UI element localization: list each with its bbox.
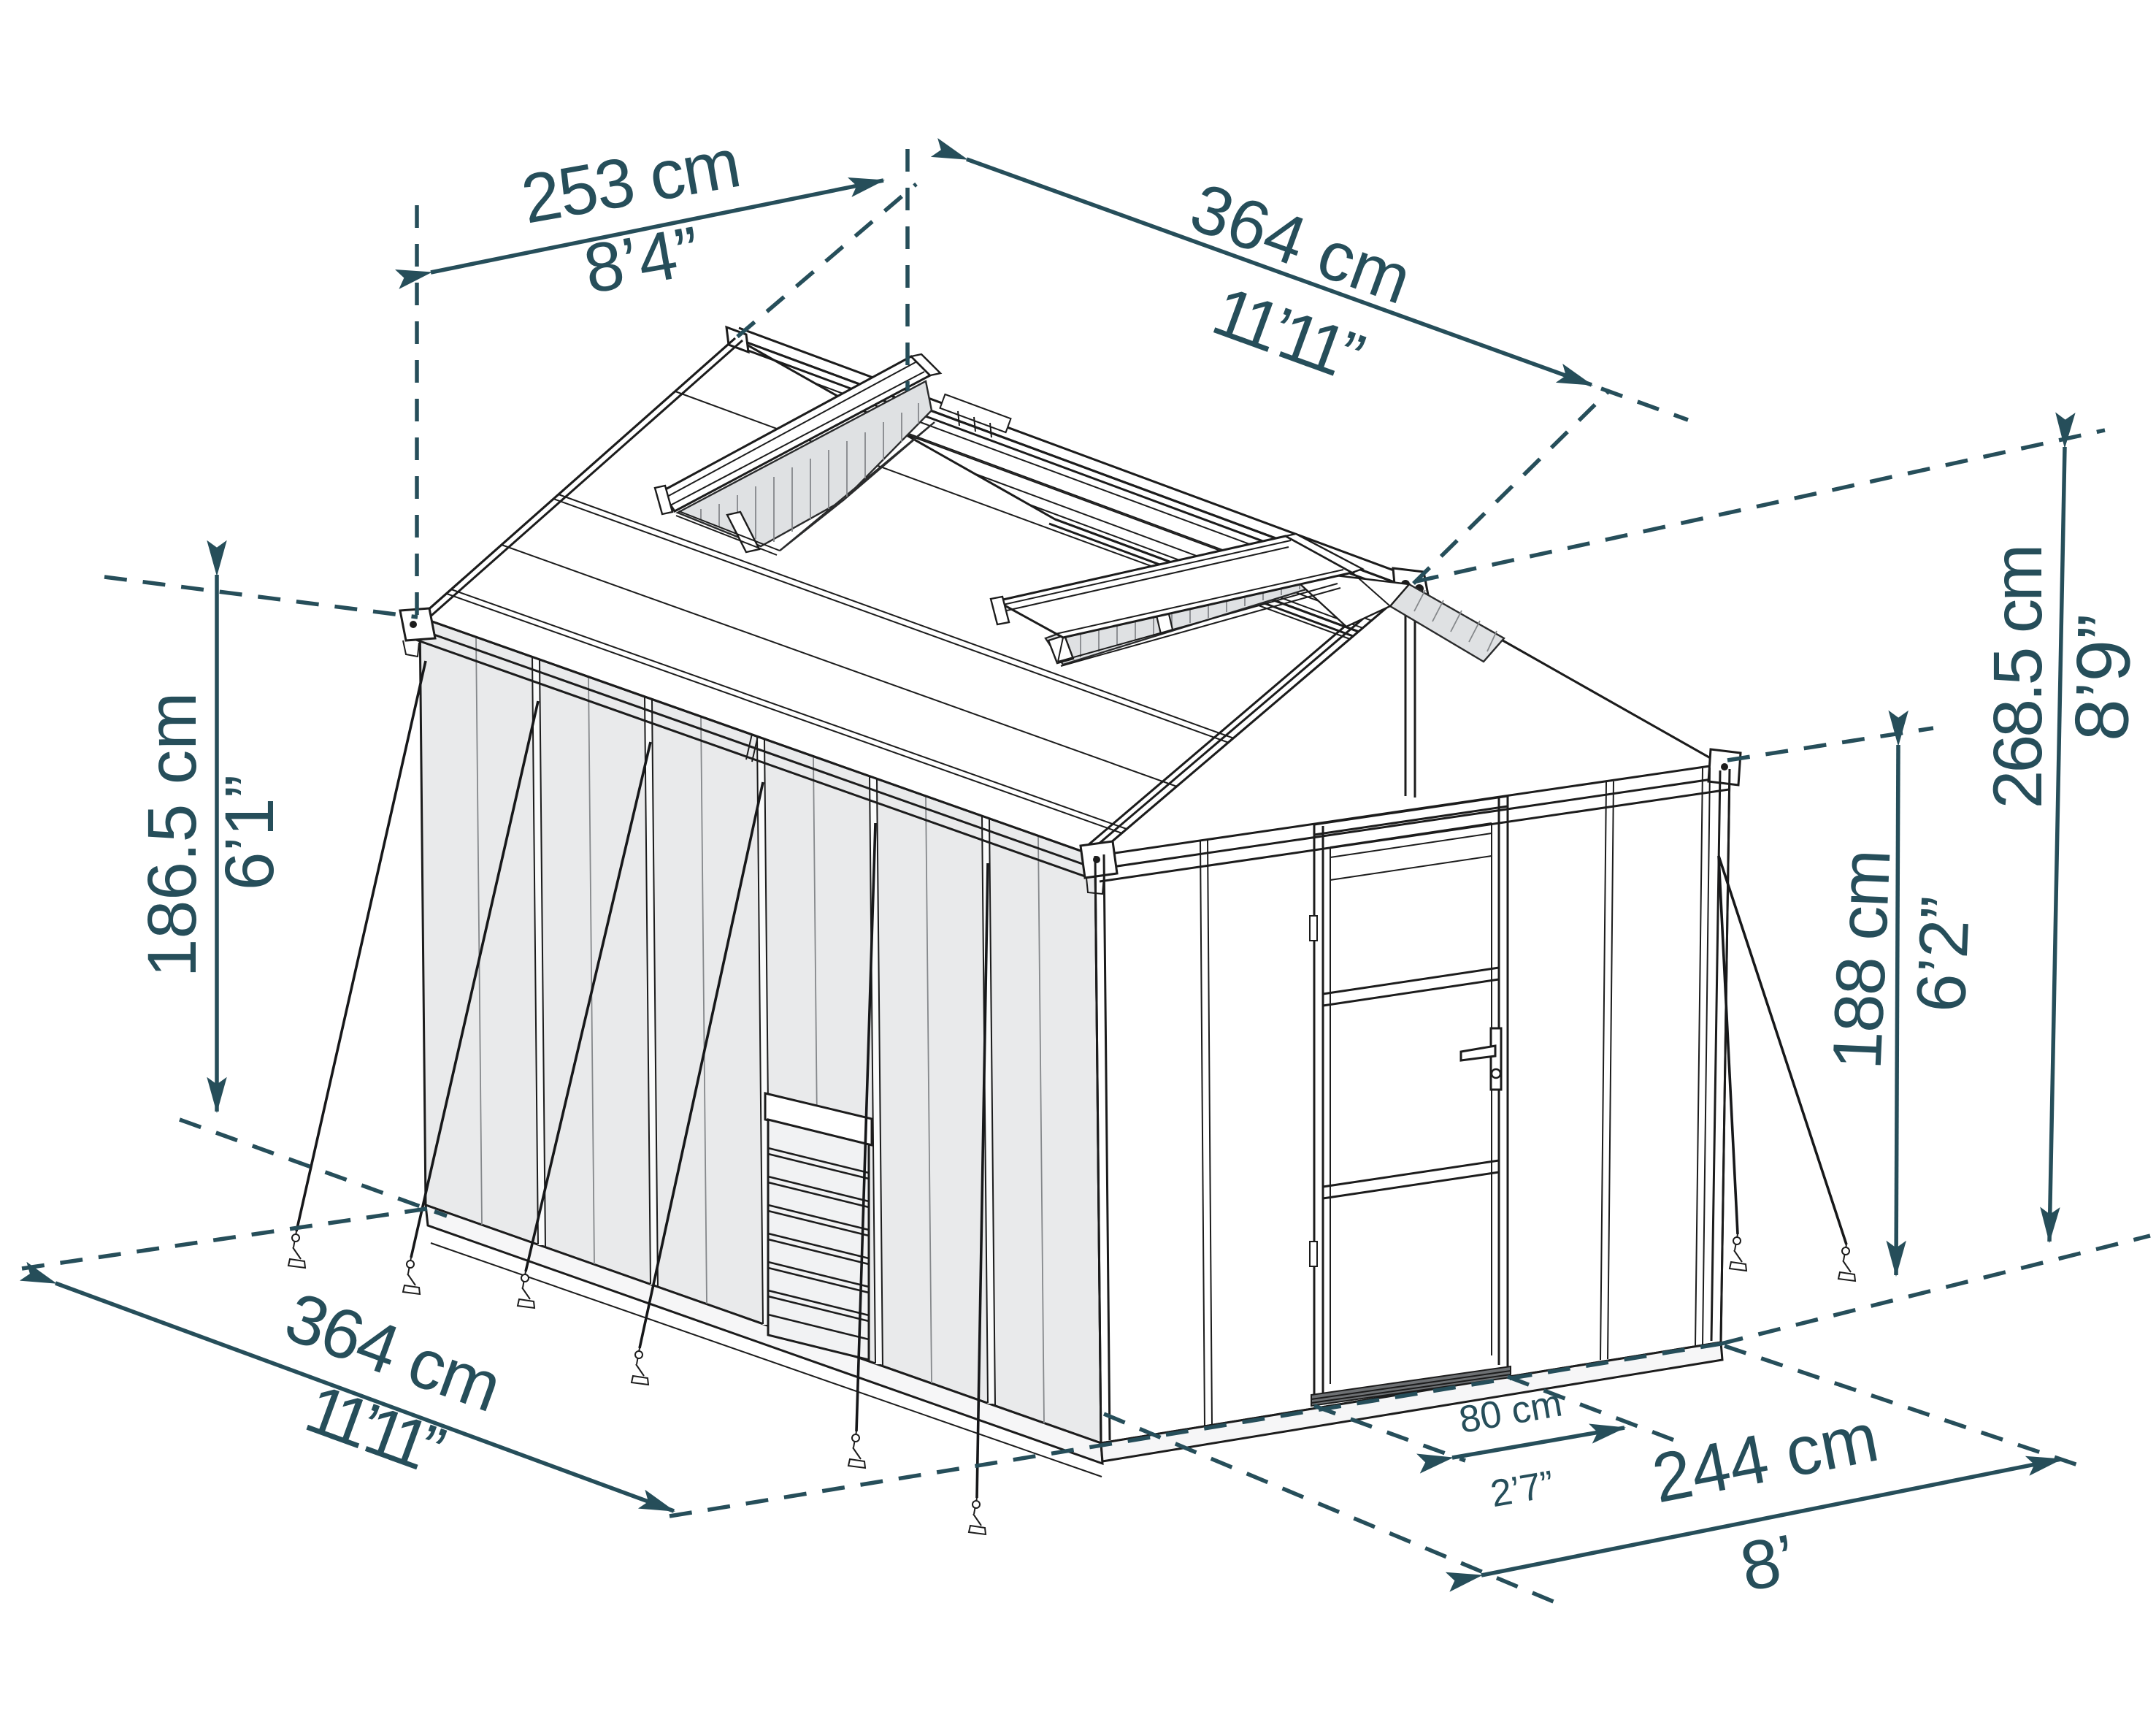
svg-text:6’1”: 6’1” <box>211 775 288 890</box>
svg-text:268.5 cm: 268.5 cm <box>1979 547 2057 809</box>
svg-text:186.5 cm: 186.5 cm <box>134 692 211 978</box>
svg-text:6’2”: 6’2” <box>1903 895 1985 1014</box>
svg-text:188 cm: 188 cm <box>1819 849 1906 1071</box>
svg-text:8’9”: 8’9” <box>2060 613 2148 742</box>
